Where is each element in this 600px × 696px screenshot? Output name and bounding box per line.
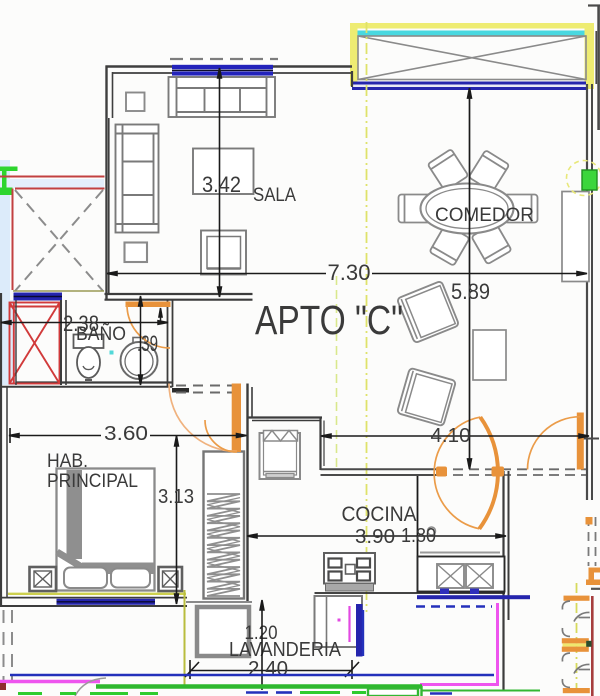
svg-text:2.40: 2.40 bbox=[248, 658, 288, 681]
svg-text:3.60: 3.60 bbox=[104, 422, 148, 445]
svg-text:SALA: SALA bbox=[253, 185, 296, 206]
svg-text:.39: .39 bbox=[137, 331, 158, 356]
svg-text:APTO "C": APTO "C" bbox=[255, 297, 403, 343]
svg-text:7.30: 7.30 bbox=[328, 260, 371, 285]
svg-text:5.89: 5.89 bbox=[451, 279, 490, 304]
svg-text:3.13: 3.13 bbox=[158, 485, 194, 508]
svg-text:BAÑO: BAÑO bbox=[76, 323, 126, 345]
svg-text:COMEDOR: COMEDOR bbox=[435, 205, 534, 226]
svg-text:HAB.: HAB. bbox=[47, 451, 88, 472]
svg-text:3.42: 3.42 bbox=[202, 172, 241, 197]
svg-text:4.10: 4.10 bbox=[431, 424, 471, 447]
svg-text:PRINCIPAL: PRINCIPAL bbox=[47, 471, 138, 492]
svg-text:COCINA: COCINA bbox=[342, 503, 417, 526]
svg-text:1.80: 1.80 bbox=[401, 524, 436, 547]
svg-text:3.90: 3.90 bbox=[355, 525, 395, 548]
